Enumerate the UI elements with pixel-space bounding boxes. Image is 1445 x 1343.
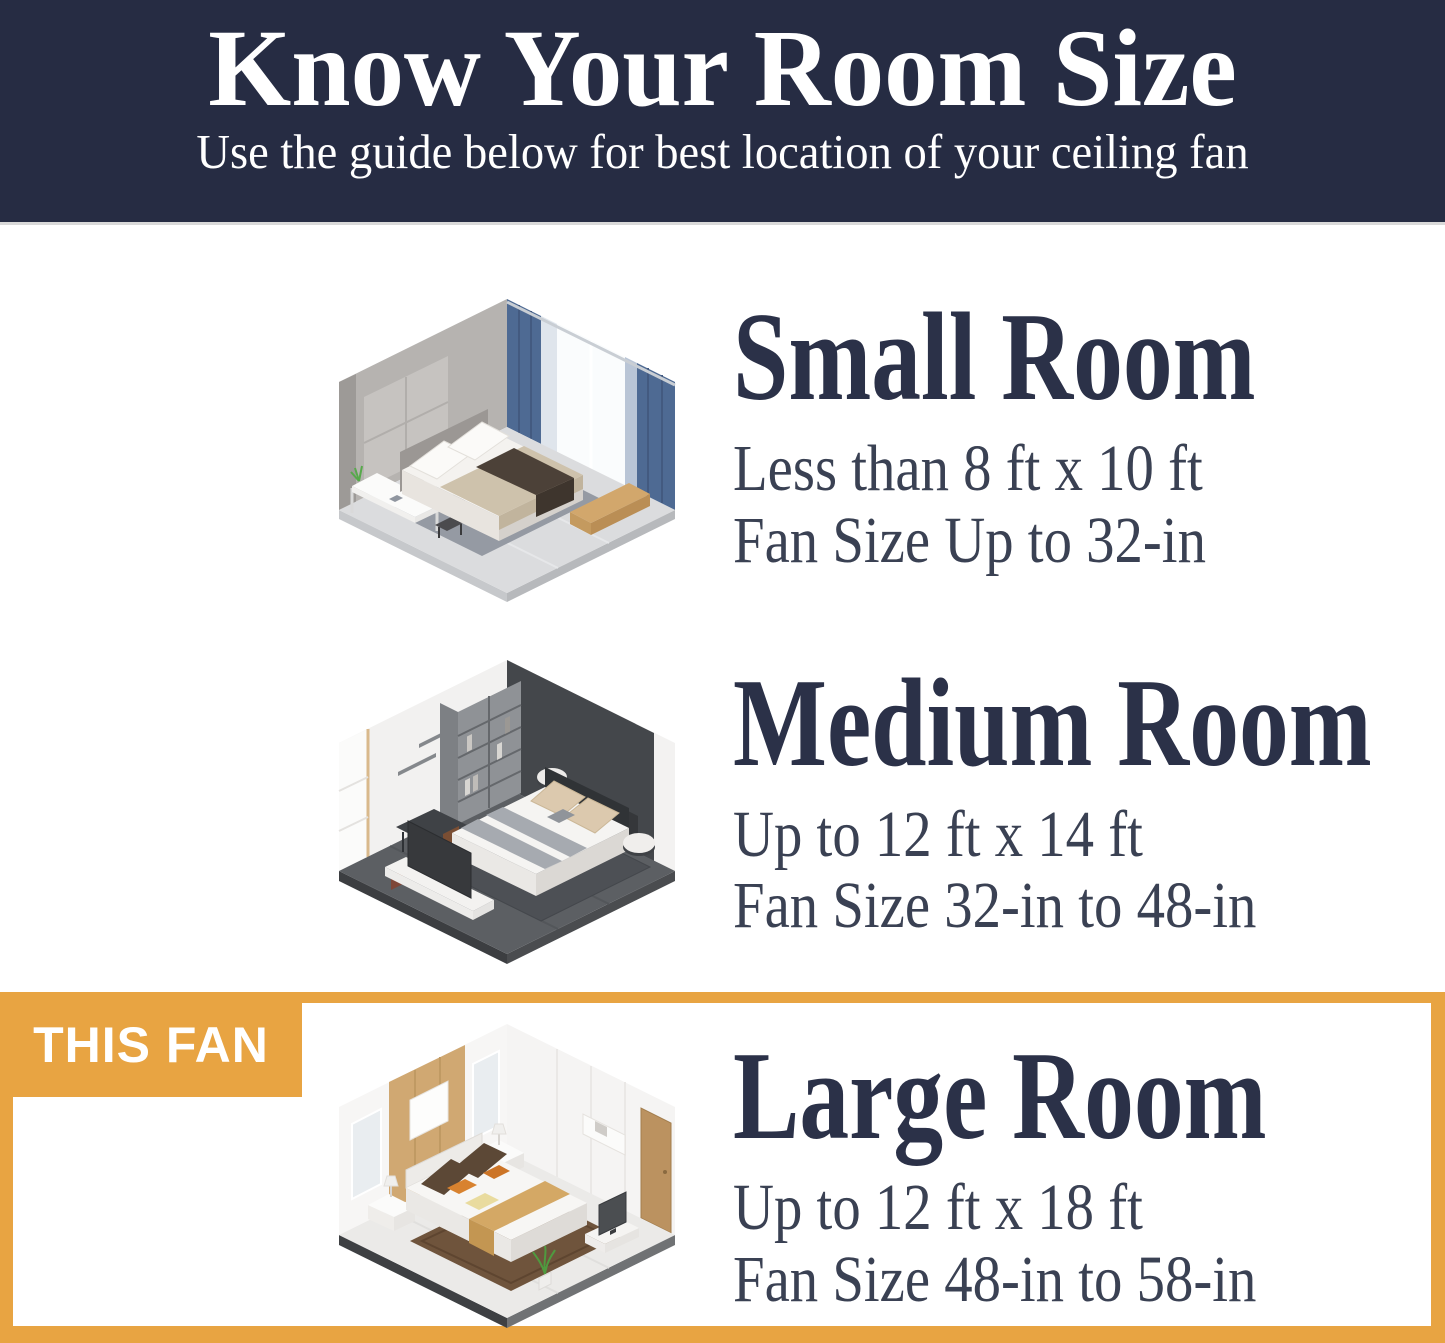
room-row-small: Small Room Less than 8 ft x 10 ft Fan Si… (0, 225, 1445, 610)
page-subtitle: Use the guide below for best location of… (36, 127, 1409, 176)
small-bedroom-isometric-graphic (307, 275, 707, 605)
room-dimensions-small: Less than 8 ft x 10 ft (733, 433, 1345, 504)
pouf (623, 833, 655, 856)
large-room-text: Large Room Up to 12 ft x 18 ft Fan Size … (720, 1013, 1431, 1336)
medium-room-text: Medium Room Up to 12 ft x 14 ft Fan Size… (720, 610, 1445, 992)
room-dimensions-medium: Up to 12 ft x 14 ft (733, 799, 1345, 870)
small-room-text: Small Room Less than 8 ft x 10 ft Fan Si… (720, 243, 1445, 628)
header-banner: Know Your Room Size Use the guide below … (0, 0, 1445, 225)
page-title: Know Your Room Size (22, 0, 1424, 123)
medium-bedroom-isometric-graphic (307, 636, 707, 966)
room-fan-size-large: Fan Size 48-in to 58-in (733, 1244, 1333, 1315)
medium-room-illustration (0, 610, 720, 992)
room-title-medium: Medium Room (733, 661, 1295, 787)
small-room-illustration (0, 225, 720, 610)
room-dimensions-large: Up to 12 ft x 18 ft (733, 1172, 1333, 1243)
room-row-large-highlight: THIS FAN (0, 992, 1445, 1343)
room-row-medium: Medium Room Up to 12 ft x 14 ft Fan Size… (0, 610, 1445, 992)
room-fan-size-small: Fan Size Up to 32-in (733, 505, 1345, 576)
room-title-small: Small Room (733, 295, 1295, 421)
room-fan-size-medium: Fan Size 32-in to 48-in (733, 870, 1345, 941)
room-title-large: Large Room (733, 1034, 1284, 1160)
this-fan-badge: THIS FAN (0, 992, 302, 1097)
large-bedroom-isometric-graphic (307, 1000, 707, 1330)
this-fan-badge-label: THIS FAN (33, 1016, 269, 1074)
